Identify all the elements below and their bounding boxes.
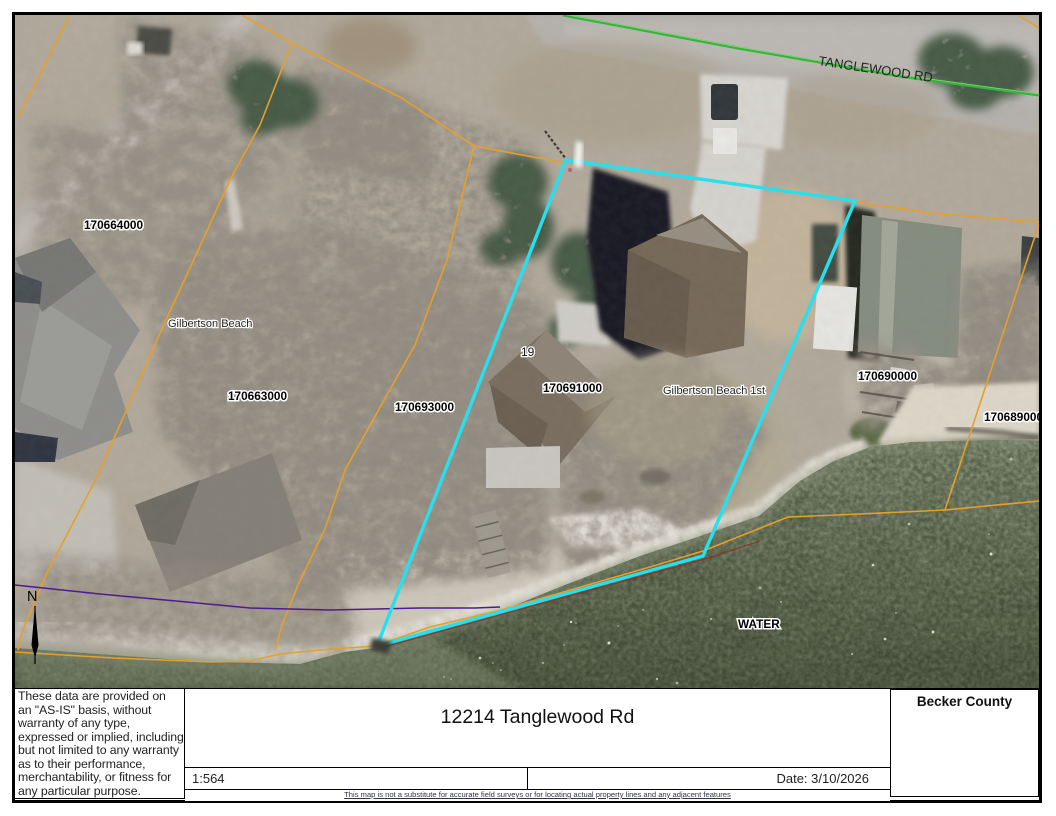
svg-text:170664000: 170664000 <box>84 218 143 232</box>
svg-text:Gilbertson Beach 1st: Gilbertson Beach 1st <box>663 385 765 397</box>
svg-text:Gilbertson Beach: Gilbertson Beach <box>168 318 252 330</box>
svg-text:N: N <box>27 589 37 605</box>
svg-text:WATER: WATER <box>738 617 780 631</box>
svg-text:170691000: 170691000 <box>543 381 602 395</box>
svg-text:170689000: 170689000 <box>984 410 1039 424</box>
svg-text:170693000: 170693000 <box>395 400 454 414</box>
svg-text:19: 19 <box>521 345 535 359</box>
svg-text:170690000: 170690000 <box>858 369 917 383</box>
svg-text:170663000: 170663000 <box>228 389 287 403</box>
